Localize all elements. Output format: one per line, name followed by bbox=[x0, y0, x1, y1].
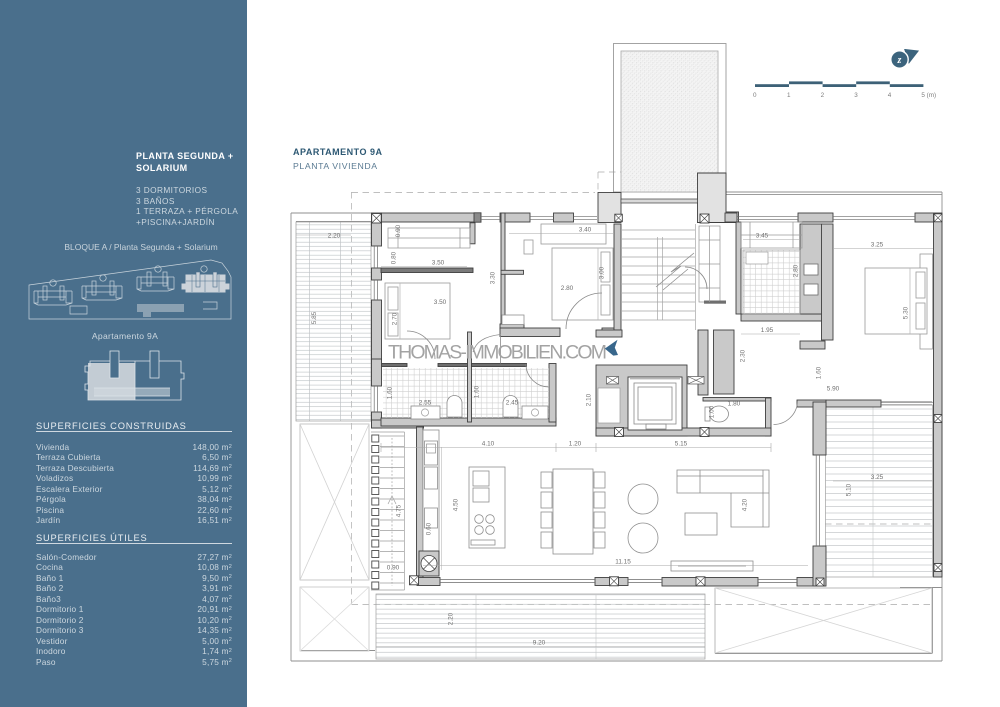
svg-text:0: 0 bbox=[753, 92, 757, 99]
svg-text:0.60: 0.60 bbox=[426, 522, 433, 535]
svg-text:4.20: 4.20 bbox=[742, 498, 749, 511]
svg-text:3.30: 3.30 bbox=[490, 271, 497, 284]
svg-text:5.15: 5.15 bbox=[675, 441, 688, 448]
svg-text:4: 4 bbox=[888, 92, 892, 99]
svg-text:1: 1 bbox=[787, 92, 791, 99]
svg-text:5.85: 5.85 bbox=[311, 311, 318, 324]
svg-text:1.20: 1.20 bbox=[569, 441, 582, 448]
svg-text:2.80: 2.80 bbox=[793, 264, 800, 277]
svg-text:1.00: 1.00 bbox=[709, 405, 716, 418]
svg-text:THOMAS-IMMOBILIEN.COM: THOMAS-IMMOBILIEN.COM bbox=[388, 342, 607, 364]
svg-text:1.60: 1.60 bbox=[816, 366, 823, 379]
svg-text:1.95: 1.95 bbox=[761, 327, 774, 334]
svg-text:2.10: 2.10 bbox=[586, 393, 593, 406]
svg-text:5.30: 5.30 bbox=[903, 306, 910, 319]
svg-text:3.00: 3.00 bbox=[599, 266, 606, 279]
svg-text:3: 3 bbox=[854, 92, 858, 99]
svg-text:3.50: 3.50 bbox=[434, 299, 447, 306]
svg-text:2.30: 2.30 bbox=[740, 349, 747, 362]
svg-text:2.20: 2.20 bbox=[328, 233, 341, 240]
svg-text:0.90: 0.90 bbox=[387, 565, 400, 572]
svg-text:0.90: 0.90 bbox=[395, 224, 402, 237]
svg-text:3.25: 3.25 bbox=[871, 474, 884, 481]
svg-text:3.45: 3.45 bbox=[756, 233, 769, 240]
svg-text:1.60: 1.60 bbox=[474, 385, 481, 398]
svg-text:2: 2 bbox=[821, 92, 825, 99]
svg-text:2.45: 2.45 bbox=[506, 400, 519, 407]
svg-text:0.80: 0.80 bbox=[391, 251, 398, 264]
svg-text:2.80: 2.80 bbox=[561, 285, 574, 292]
svg-text:5.10: 5.10 bbox=[846, 483, 853, 496]
svg-text:3.40: 3.40 bbox=[579, 227, 592, 234]
svg-text:1.80: 1.80 bbox=[728, 401, 741, 408]
svg-text:2.20: 2.20 bbox=[448, 612, 455, 625]
svg-text:1.60: 1.60 bbox=[387, 386, 394, 399]
svg-text:4.75: 4.75 bbox=[396, 504, 403, 517]
svg-text:4.50: 4.50 bbox=[453, 498, 460, 511]
svg-text:5 (m): 5 (m) bbox=[921, 92, 936, 99]
svg-text:5.90: 5.90 bbox=[827, 386, 840, 393]
svg-text:9.20: 9.20 bbox=[533, 640, 546, 647]
svg-text:11.15: 11.15 bbox=[615, 559, 631, 566]
svg-text:2.70: 2.70 bbox=[392, 312, 399, 325]
svg-text:3.50: 3.50 bbox=[432, 260, 445, 267]
svg-text:z: z bbox=[897, 55, 902, 66]
svg-text:4.10: 4.10 bbox=[482, 441, 495, 448]
svg-text:3.25: 3.25 bbox=[871, 242, 884, 249]
svg-text:2.55: 2.55 bbox=[419, 400, 432, 407]
